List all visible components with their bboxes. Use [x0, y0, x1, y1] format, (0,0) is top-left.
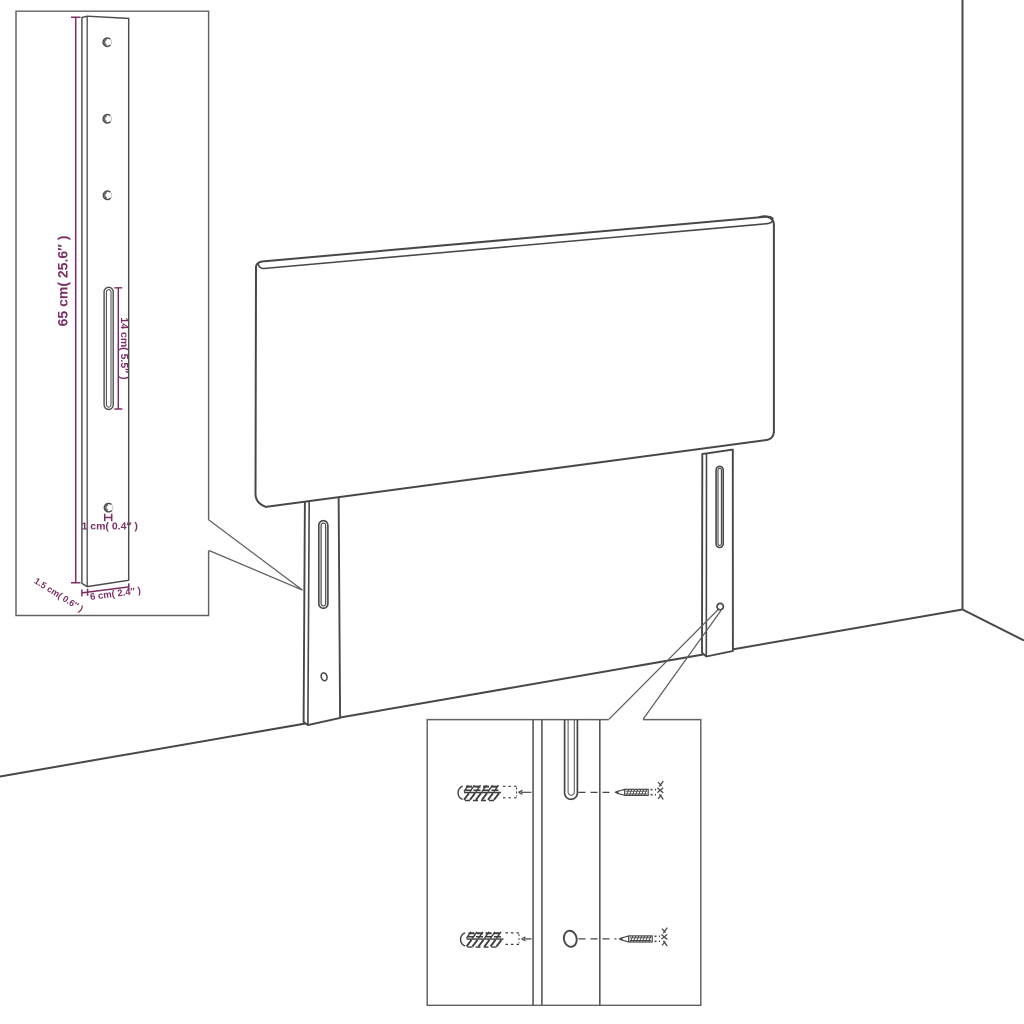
svg-text:1 cm( 0.4″ ): 1 cm( 0.4″ ): [82, 521, 138, 533]
svg-text:14 cm( 5.5″ ): 14 cm( 5.5″ ): [118, 317, 130, 379]
svg-text:65 cm( 25.6″ ): 65 cm( 25.6″ ): [55, 236, 71, 327]
